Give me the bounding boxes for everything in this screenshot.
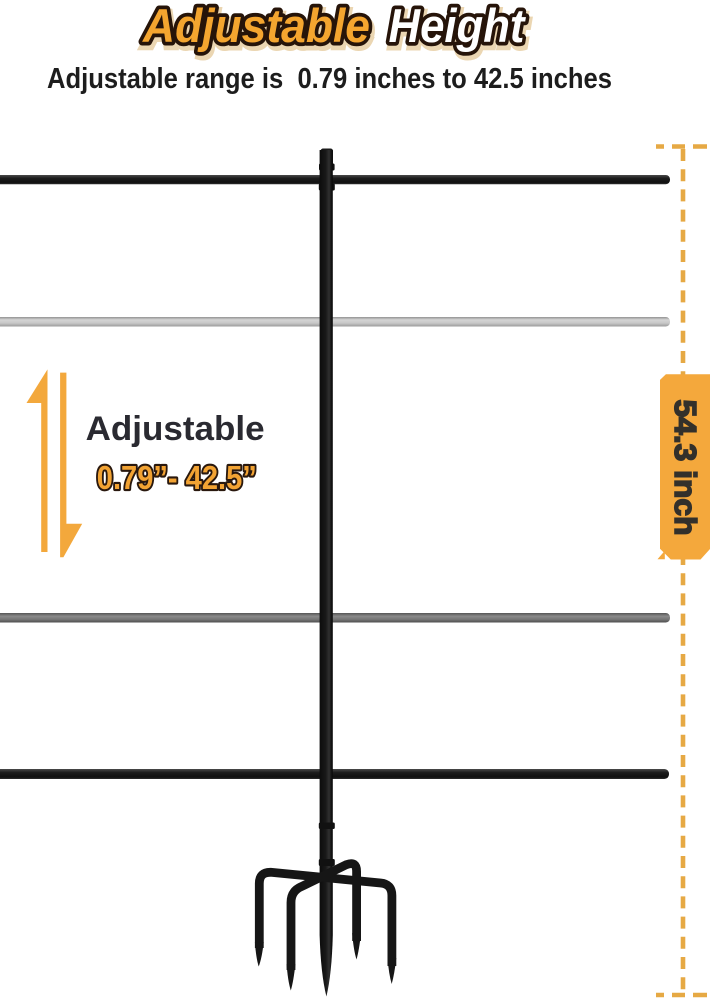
svg-text:54.3 inch: 54.3 inch <box>668 400 703 536</box>
svg-text:Adjustable: Adjustable <box>86 410 265 448</box>
svg-text:0.79”- 42.5”: 0.79”- 42.5” <box>97 459 257 496</box>
svg-text:Adjustable range is 0.79 inch: Adjustable range is 0.79 inches to 42.5 … <box>47 63 612 95</box>
svg-text:Height: Height <box>389 0 527 52</box>
svg-text:Adjustable: Adjustable <box>142 0 370 52</box>
